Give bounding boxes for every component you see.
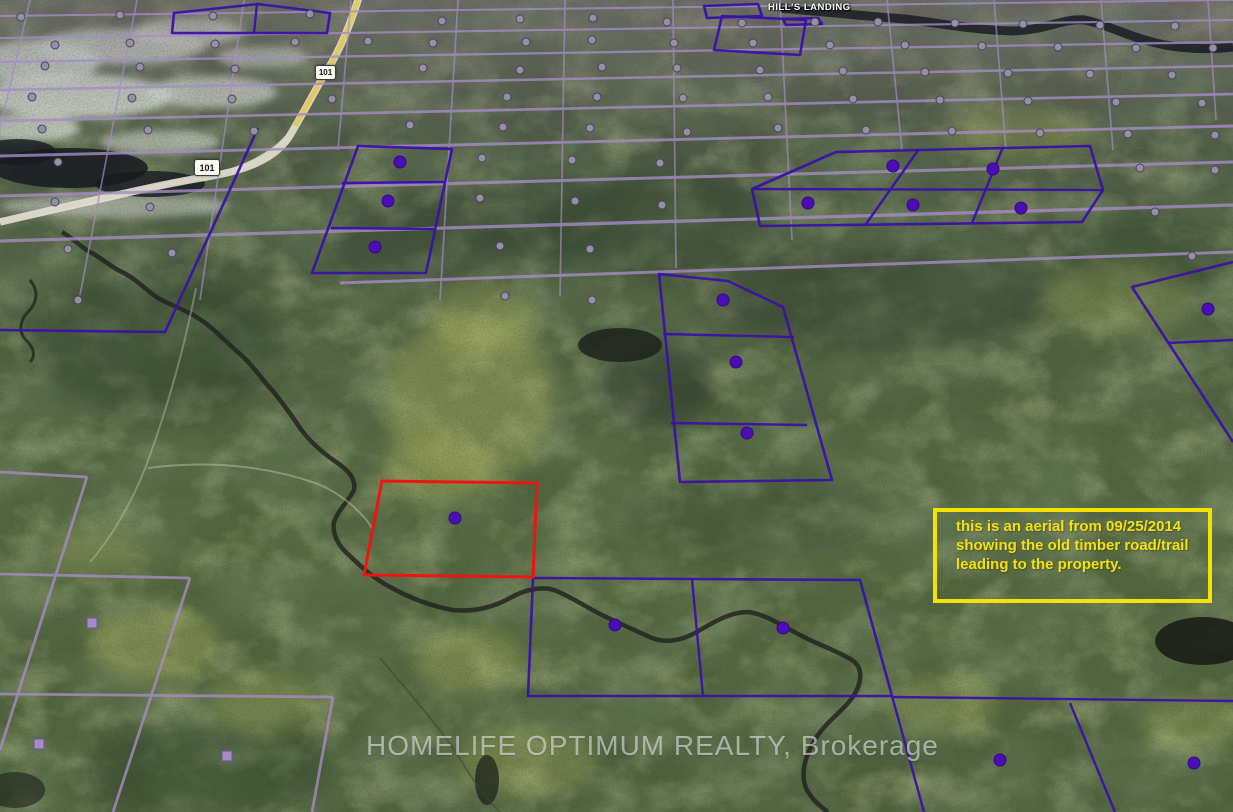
parcel-placemark-square[interactable] (87, 618, 97, 628)
parcel-center-dot (54, 158, 62, 166)
parcel-center-dot (901, 41, 909, 49)
parcel-center-dot (568, 156, 576, 164)
parcel-divider-line (331, 228, 434, 229)
parcel-center-dot (656, 159, 664, 167)
parcel-placemark[interactable] (1188, 757, 1200, 769)
parcel-center-dot (749, 39, 757, 47)
parcel-center-dot (1171, 22, 1179, 30)
parcel-center-dot (211, 40, 219, 48)
parcel-placemark[interactable] (802, 197, 814, 209)
parcel-center-dot (811, 18, 819, 26)
parcel-center-dot (209, 12, 217, 20)
parcel-center-dot (250, 127, 258, 135)
parcel-center-dot (51, 198, 59, 206)
parcel-center-dot (679, 94, 687, 102)
parcel-center-dot (128, 94, 136, 102)
parcel-center-dot (586, 124, 594, 132)
parcel-center-dot (231, 65, 239, 73)
parcel-center-dot (1151, 208, 1159, 216)
highway-shield-number: 101 (319, 68, 332, 77)
parcel-center-dot (1124, 130, 1132, 138)
parcel-center-dot (948, 127, 956, 135)
parcel-center-dot (496, 242, 504, 250)
parcel-center-dot (588, 296, 596, 304)
parcel-center-dot (146, 203, 154, 211)
parcel-center-dot (951, 19, 959, 27)
parcel-center-dot (74, 296, 82, 304)
parcel-center-dot (663, 18, 671, 26)
pond (578, 328, 662, 362)
parcel-placemark[interactable] (609, 619, 621, 631)
parcel-center-dot (1096, 21, 1104, 29)
parcel-center-dot (1209, 44, 1217, 52)
parcel-placemark-square[interactable] (222, 751, 232, 761)
parcel-center-dot (522, 38, 530, 46)
parcel-center-dot (1004, 69, 1012, 77)
parcel-center-dot (168, 249, 176, 257)
parcel-center-dot (429, 39, 437, 47)
parcel-center-dot (874, 18, 882, 26)
brokerage-watermark: HOMELIFE OPTIMUM REALTY, Brokerage (366, 730, 939, 762)
parcel-center-dot (38, 125, 46, 133)
parcel-center-dot (501, 292, 509, 300)
terrain-speckle (0, 0, 1233, 812)
parcel-center-dot (516, 66, 524, 74)
highway-101-shield: 101 (194, 159, 220, 176)
parcel-center-dot (51, 41, 59, 49)
parcel-center-dot (306, 10, 314, 18)
parcel-center-dot (862, 126, 870, 134)
parcel-center-dot (438, 17, 446, 25)
parcel-center-dot (1136, 164, 1144, 172)
highway-101-shield: 101 (315, 65, 336, 80)
parcel-center-dot (291, 38, 299, 46)
parcel-center-dot (978, 42, 986, 50)
parcel-center-dot (1036, 129, 1044, 137)
parcel-divider-line (752, 189, 1103, 190)
parcel-center-dot (826, 41, 834, 49)
parcel-placemark[interactable] (907, 199, 919, 211)
parcel-center-dot (64, 245, 72, 253)
parcel-placemark[interactable] (1202, 303, 1214, 315)
parcel-center-dot (738, 19, 746, 27)
parcel-center-dot (126, 39, 134, 47)
parcel-center-dot (1024, 97, 1032, 105)
parcel-center-dot (764, 93, 772, 101)
parcel-center-dot (756, 66, 764, 74)
parcel-placemark[interactable] (717, 294, 729, 306)
parcel-center-dot (588, 36, 596, 44)
parcel-center-dot (478, 154, 486, 162)
place-label: HILL'S LANDING (768, 2, 851, 13)
parcel-placemark[interactable] (730, 356, 742, 368)
parcel-divider-line (342, 182, 444, 183)
parcel-center-dot (1112, 98, 1120, 106)
parcel-center-dot (571, 197, 579, 205)
parcel-center-dot (364, 37, 372, 45)
parcel-center-dot (1168, 71, 1176, 79)
parcel-center-dot (1132, 44, 1140, 52)
parcel-placemark[interactable] (394, 156, 406, 168)
parcel-placemark[interactable] (382, 195, 394, 207)
annotation-callout-box: this is an aerial from 09/25/2014 showin… (933, 508, 1212, 603)
parcel-placemark-square[interactable] (34, 739, 44, 749)
parcel-center-dot (586, 245, 594, 253)
annotation-text: this is an aerial from 09/25/2014 showin… (956, 517, 1200, 574)
parcel-center-dot (598, 63, 606, 71)
parcel-placemark[interactable] (887, 160, 899, 172)
map-canvas (0, 0, 1233, 812)
parcel-center-dot (41, 62, 49, 70)
parcel-center-dot (658, 201, 666, 209)
parcel-center-dot (476, 194, 484, 202)
parcel-center-dot (849, 95, 857, 103)
parcel-center-dot (228, 95, 236, 103)
parcel-center-dot (774, 124, 782, 132)
parcel-center-dot (516, 15, 524, 23)
aerial-map-view[interactable]: HILL'S LANDING 101 101 HOMELIFE OPTIMUM … (0, 0, 1233, 812)
parcel-center-dot (17, 13, 25, 21)
parcel-center-dot (328, 95, 336, 103)
parcel-center-dot (921, 68, 929, 76)
parcel-center-dot (1211, 131, 1219, 139)
parcel-center-dot (673, 64, 681, 72)
parcel-placemark[interactable] (777, 622, 789, 634)
parcel-center-dot (1188, 252, 1196, 260)
parcel-center-dot (1054, 43, 1062, 51)
parcel-center-dot (1211, 166, 1219, 174)
parcel-center-dot (670, 39, 678, 47)
parcel-center-dot (116, 11, 124, 19)
parcel-center-dot (136, 63, 144, 71)
parcel-center-dot (419, 64, 427, 72)
parcel-center-dot (499, 123, 507, 131)
parcel-center-dot (1019, 20, 1027, 28)
parcel-placemark[interactable] (987, 163, 999, 175)
parcel-center-dot (1086, 70, 1094, 78)
parcel-center-dot (936, 96, 944, 104)
parcel-placemark[interactable] (449, 512, 461, 524)
highway-shield-number: 101 (199, 163, 214, 173)
parcel-center-dot (683, 128, 691, 136)
parcel-center-dot (589, 14, 597, 22)
parcel-placemark[interactable] (994, 754, 1006, 766)
parcel-center-dot (1198, 99, 1206, 107)
parcel-placemark[interactable] (741, 427, 753, 439)
parcel-center-dot (144, 126, 152, 134)
parcel-placemark[interactable] (369, 241, 381, 253)
parcel-center-dot (406, 121, 414, 129)
parcel-placemark[interactable] (1015, 202, 1027, 214)
parcel-center-dot (593, 93, 601, 101)
parcel-center-dot (503, 93, 511, 101)
parcel-center-dot (839, 67, 847, 75)
parcel-center-dot (28, 93, 36, 101)
